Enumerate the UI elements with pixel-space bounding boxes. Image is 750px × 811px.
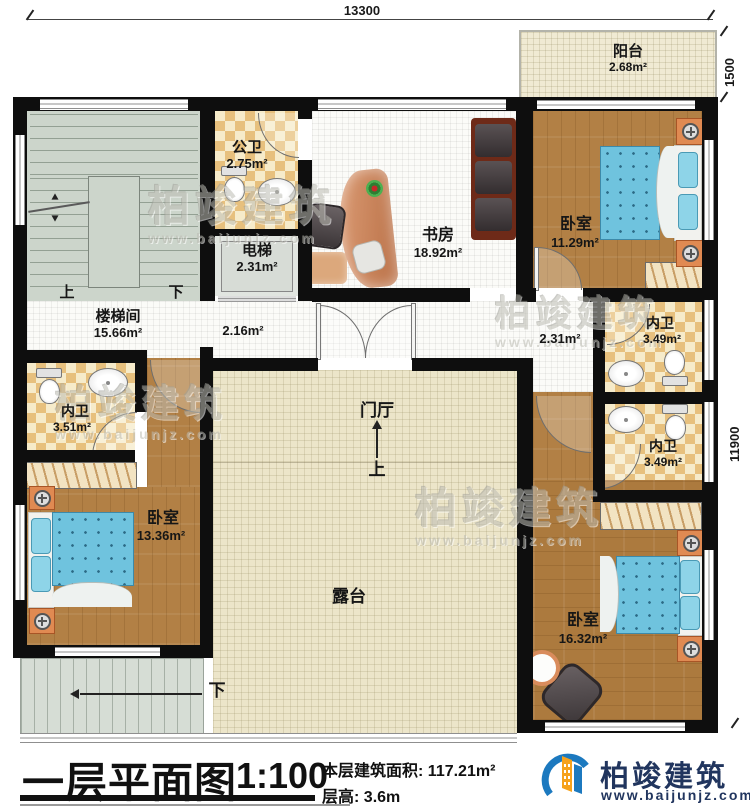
terrace-label: 露台 <box>314 588 384 606</box>
toilet-icon <box>662 404 688 440</box>
bedroom-ne-door-leaf <box>534 247 539 291</box>
lamp-icon <box>34 490 51 507</box>
balcony-label: 阳台 <box>593 44 663 60</box>
wall-study-south-stub <box>516 288 536 302</box>
dimension-right-main: 11900 <box>727 402 742 462</box>
sink-icon <box>608 360 644 387</box>
wall-study-south <box>312 288 470 302</box>
stair-arrow-up <box>52 193 59 199</box>
exterior-stairs <box>20 658 204 735</box>
nightstand <box>676 240 705 267</box>
sink-icon <box>608 406 644 433</box>
bed-sw-mattress <box>52 512 134 586</box>
ext-stairs-arrow-line <box>80 693 202 695</box>
public-bath-area: 2.75m² <box>212 157 282 171</box>
toilet-icon <box>662 350 688 386</box>
title-underline-thick <box>20 795 315 801</box>
wall-study-bedroom <box>516 97 533 302</box>
stair-flight-left <box>30 178 88 288</box>
bedroom-ne-label: 卧室 <box>541 217 611 234</box>
bath-ne-label: 内卫 <box>625 316 695 331</box>
lamp-icon <box>34 613 51 630</box>
hall-e-floor <box>533 301 593 392</box>
lamp-icon <box>683 641 700 658</box>
brand-logo-icon <box>540 748 594 804</box>
dimension-top-label: 13300 <box>332 3 392 18</box>
bed-ne-pillow <box>678 194 698 230</box>
nightstand <box>29 486 55 510</box>
dimension-tick <box>720 92 729 103</box>
bath-se-label: 内卫 <box>628 439 698 454</box>
hall-e-area: 2.31m² <box>525 332 595 346</box>
bed-sw-pillow <box>31 556 51 592</box>
title-block: 一层平面图 1:100 本层建筑面积: 117.21m² 层高: 3.6m 柏竣… <box>0 745 750 811</box>
dimension-right-balcony: 1500 <box>722 45 737 87</box>
nightstand <box>677 530 705 556</box>
wall-bathw-south <box>26 450 135 462</box>
wall-bathse-south <box>593 490 715 502</box>
study-bookshelf-cushion <box>475 161 512 194</box>
bath-w-area: 3.51m² <box>37 421 107 434</box>
title-underline-thin <box>20 804 350 806</box>
stair-up-label: 上 <box>52 285 82 301</box>
window-right-bedroomse <box>704 550 714 640</box>
foyer-terrace-floor <box>213 370 517 733</box>
public-bath-label: 公卫 <box>212 140 282 156</box>
wall-bedroomsw-east <box>200 347 213 658</box>
brand-website: www.baijunjz.com <box>601 787 750 803</box>
entry-door-leaf-left <box>316 303 321 360</box>
wall-bath-study2 <box>298 160 312 301</box>
stair-arrow-down <box>52 215 59 221</box>
balcony-area: 2.68m² <box>593 61 663 74</box>
wall-foyer-top-w <box>200 358 318 371</box>
wardrobe-se <box>600 502 702 530</box>
wall-bathw-top <box>13 350 147 363</box>
dimension-tick <box>720 26 729 37</box>
window-bedroomse-south <box>545 722 685 731</box>
study-bookshelf-cushion <box>475 124 512 157</box>
dimension-tick <box>731 718 740 729</box>
dimension-line-top <box>28 19 713 20</box>
study-plant <box>366 180 383 197</box>
elevator-label: 电梯 <box>222 243 292 259</box>
wall-foyer-top-e <box>412 358 520 371</box>
stairwell-label: 楼梯间 <box>83 309 153 325</box>
window-left-stair <box>15 135 25 225</box>
wardrobe-sw <box>26 462 137 489</box>
nightstand <box>676 118 705 145</box>
bed-ne-sheet <box>656 146 677 238</box>
foyer-up-label: 上 <box>362 461 392 479</box>
bed-ne-pillow <box>678 152 698 188</box>
floor-plan: 13300 阳台 2.68m² 1500 11900 <box>0 0 750 811</box>
stairwell-area: 15.66m² <box>83 326 153 340</box>
balcony-slider <box>537 100 695 109</box>
bedroom-se-label: 卧室 <box>548 613 618 630</box>
foyer-up-arrow-head <box>372 420 382 429</box>
bath-w-label: 内卫 <box>40 404 110 419</box>
wall-bathw-east <box>135 363 147 412</box>
wall-bedroomse-west <box>517 358 533 733</box>
stair-flight-top <box>30 114 198 178</box>
study-label: 书房 <box>403 228 473 245</box>
window-bedroomsw-south <box>55 647 160 656</box>
window-stairwell <box>40 99 188 110</box>
bedroom-se-area: 16.32m² <box>548 632 618 646</box>
bed-sw-sheet <box>52 582 132 607</box>
terrace-railing <box>20 733 517 744</box>
lamp-icon <box>683 535 700 552</box>
wall-halle-east <box>593 288 605 490</box>
sink-icon <box>88 368 128 397</box>
bed-se-pillow <box>680 596 700 630</box>
plan-scale: 1:100 <box>236 755 328 797</box>
elevator-area: 2.31m² <box>222 260 292 274</box>
floor-area-text: 本层建筑面积: 117.21m² <box>322 757 495 781</box>
window-right-bathne <box>704 300 714 380</box>
entry-door-leaf-right <box>411 303 416 360</box>
study-bookshelf-cushion <box>475 198 512 231</box>
window-right-bathse <box>704 402 714 482</box>
wall-bath-study <box>298 111 312 119</box>
stair-landing <box>88 176 140 288</box>
foyer-label: 门厅 <box>342 402 412 420</box>
stair-flight-right <box>138 178 198 288</box>
bedroom-sw-label: 卧室 <box>128 511 198 528</box>
bed-se-mattress <box>616 556 680 634</box>
sink-icon <box>258 178 296 206</box>
ext-stairs-arrow-head <box>70 689 79 699</box>
bath-se-area: 3.49m² <box>628 456 698 469</box>
nightstand <box>677 636 705 662</box>
window-left-bedroom <box>15 505 25 600</box>
ext-stairs-down-label: 下 <box>202 682 232 700</box>
floor-height-text: 层高: 3.6m <box>322 783 400 807</box>
wall-bathne-se-divider <box>593 392 707 404</box>
elevator-door <box>218 296 296 302</box>
nightstand <box>29 608 55 634</box>
wall-bath-elevator <box>215 229 298 236</box>
bath-ne-area: 3.49m² <box>627 333 697 346</box>
bed-sw-pillow <box>31 518 51 554</box>
study-area: 18.92m² <box>403 246 473 260</box>
toilet-icon <box>36 368 62 404</box>
stair-down-label: 下 <box>161 285 191 301</box>
bed-se-pillow <box>680 560 700 594</box>
foyer-up-arrow-line <box>376 428 378 458</box>
lamp-icon <box>682 123 699 140</box>
hall-area: 2.16m² <box>208 324 278 338</box>
window-study <box>318 99 506 110</box>
bedroom-ne-area: 11.29m² <box>540 236 610 250</box>
window-right-bedroomne <box>704 140 714 240</box>
bedroom-sw-area: 13.36m² <box>126 529 196 543</box>
lamp-icon <box>682 245 699 262</box>
toilet-icon <box>221 166 247 202</box>
